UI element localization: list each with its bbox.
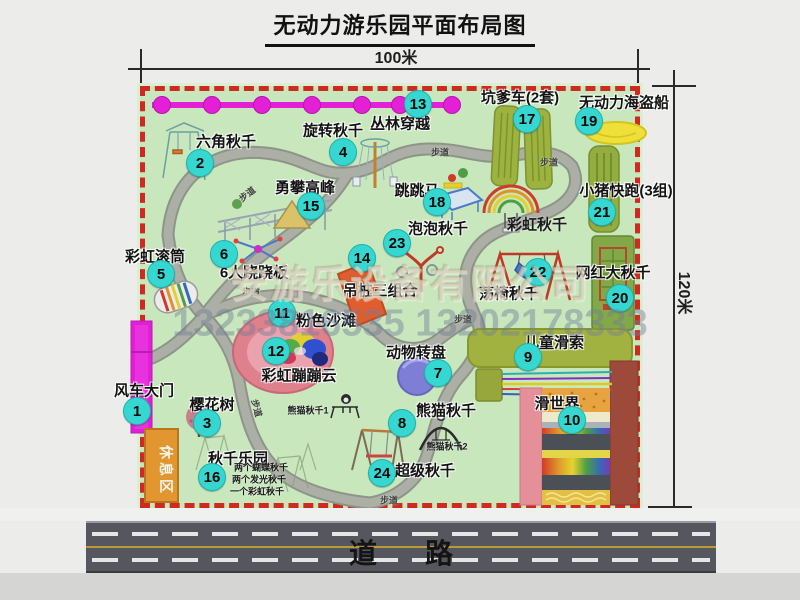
phone-watermark: 13233816535 13202178333 (172, 303, 648, 346)
top-dimension-tick-left (140, 49, 142, 87)
page-title-text: 无动力游乐园平面布局图 (265, 8, 534, 47)
top-dimension-line (128, 68, 650, 70)
company-watermark: 安游乐设备有限公司 (230, 254, 590, 309)
below-road-strip (0, 573, 800, 600)
right-dimension-label: 120米 (674, 272, 698, 315)
page-title: 无动力游乐园平面布局图 (0, 8, 800, 47)
top-dimension-tick-right (637, 49, 639, 87)
right-dimension-tick-top (652, 85, 696, 87)
road: 道路 (86, 521, 716, 573)
playground-map-screenshot: 无动力游乐园平面布局图 100米 120米 (0, 0, 800, 600)
top-dimension-label: 100米 (375, 44, 418, 68)
road-label: 道路 (86, 532, 716, 572)
roadside-strip (0, 508, 800, 521)
